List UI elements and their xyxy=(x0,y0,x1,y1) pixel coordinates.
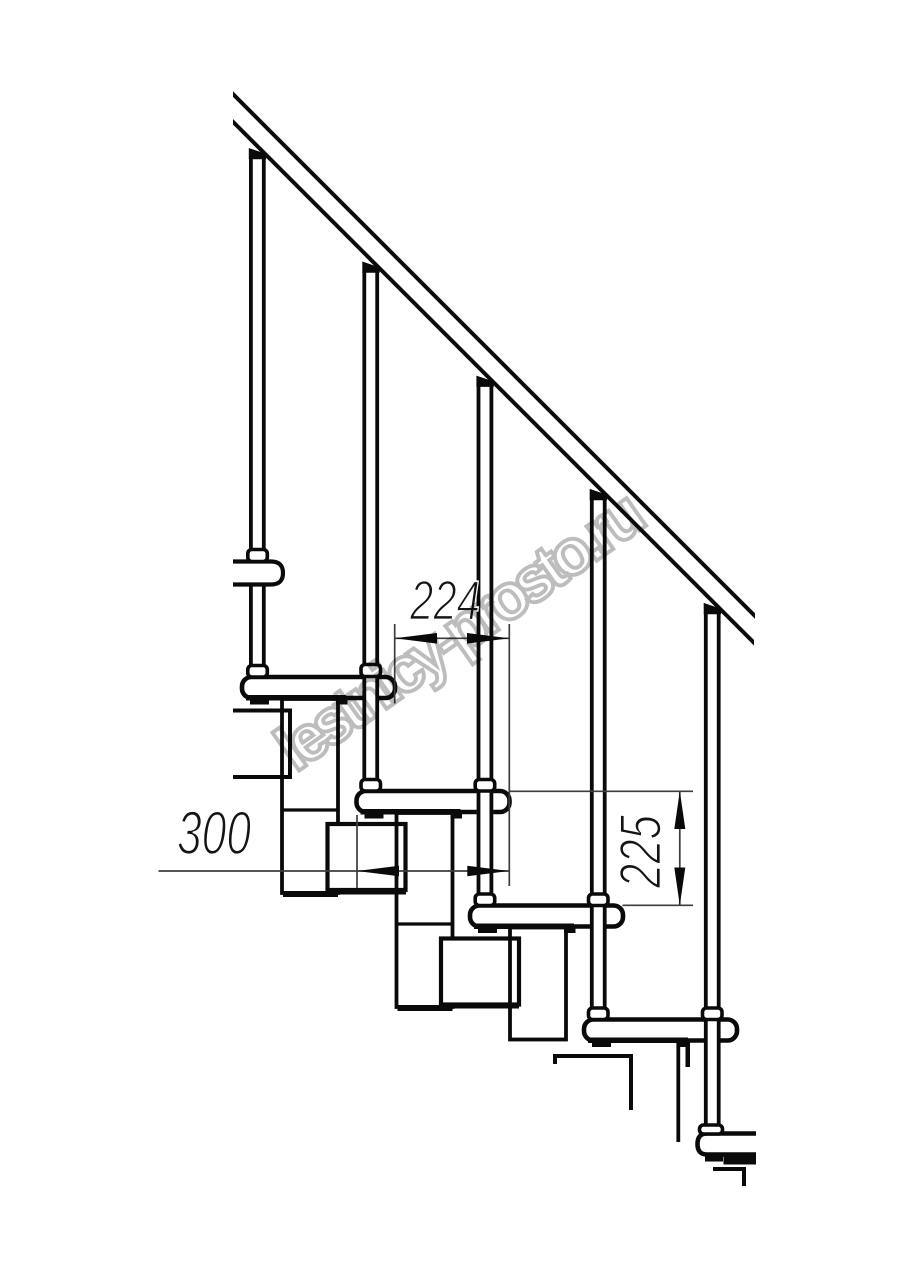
svg-text:300: 300 xyxy=(177,799,251,867)
svg-text:225: 225 xyxy=(609,814,674,888)
